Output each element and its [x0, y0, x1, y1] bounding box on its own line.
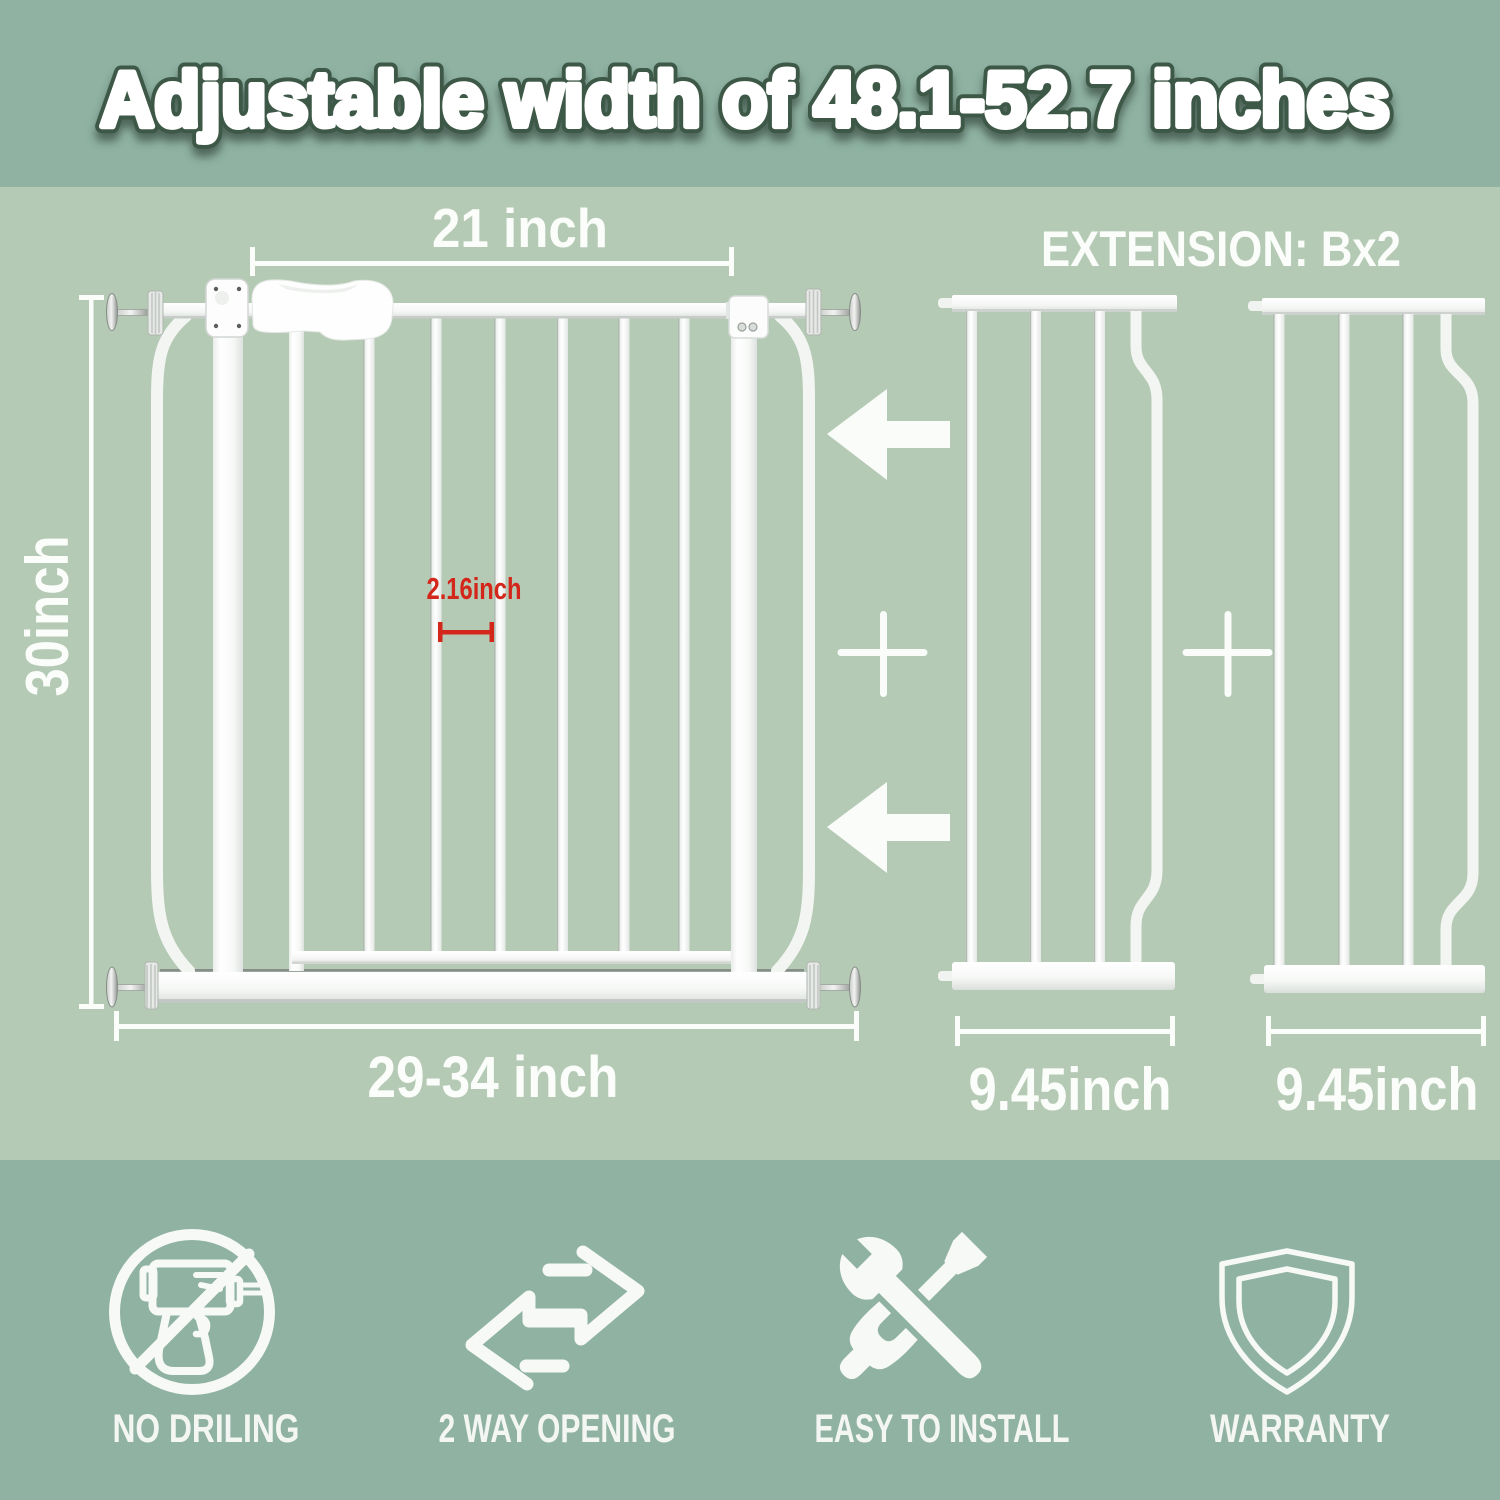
- svg-text:9.45inch: 9.45inch: [969, 1056, 1172, 1123]
- svg-text:NO DRILING: NO DRILING: [113, 1407, 300, 1451]
- svg-text:WARRANTY: WARRANTY: [1210, 1407, 1390, 1451]
- svg-text:9.45inch: 9.45inch: [1276, 1056, 1479, 1123]
- svg-text:EXTENSION: Bx2: EXTENSION: Bx2: [1041, 221, 1401, 277]
- svg-text:2 WAY OPENING: 2 WAY OPENING: [439, 1407, 676, 1451]
- svg-text:2.16inch: 2.16inch: [427, 571, 522, 606]
- svg-text:EASY TO INSTALL: EASY TO INSTALL: [815, 1407, 1070, 1451]
- svg-text:21 inch: 21 inch: [432, 197, 608, 259]
- svg-text:Adjustable width of 48.1-52.7: Adjustable width of 48.1-52.7 inches: [100, 55, 1390, 143]
- svg-text:29-34 inch: 29-34 inch: [368, 1045, 619, 1110]
- svg-text:30inch: 30inch: [14, 536, 81, 697]
